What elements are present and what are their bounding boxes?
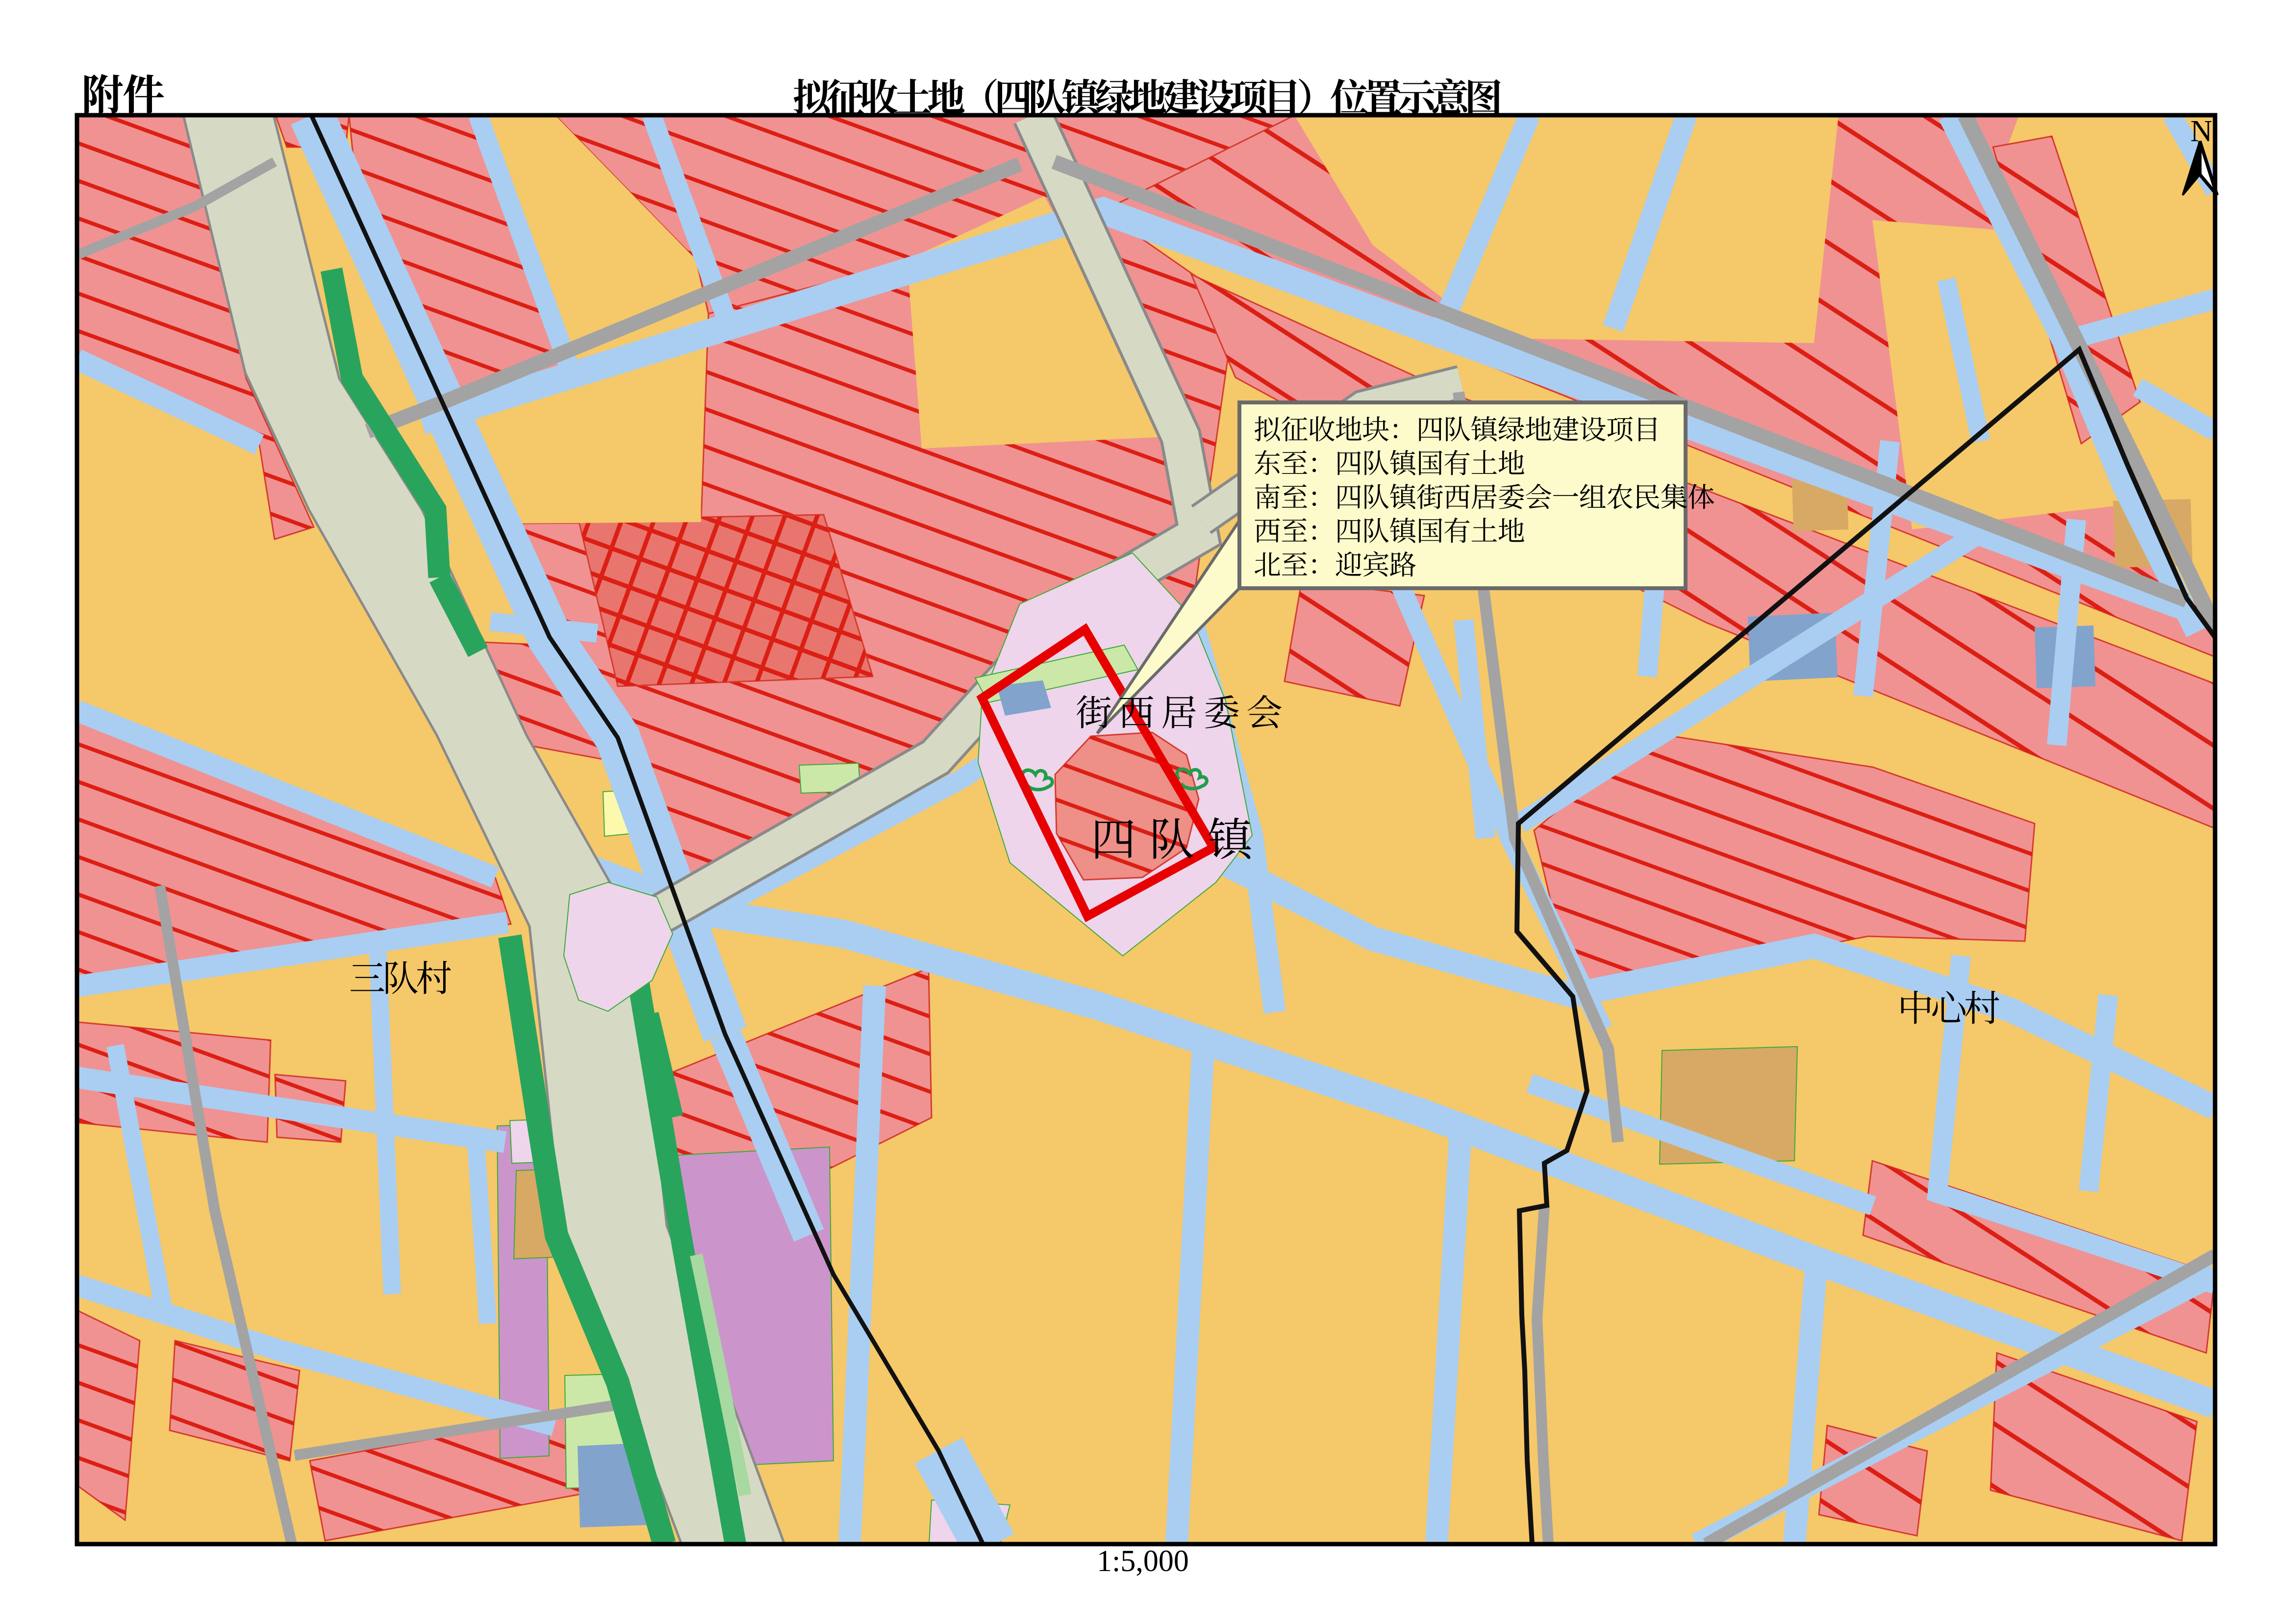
- svg-text:1:5,000: 1:5,000: [1097, 1545, 1189, 1578]
